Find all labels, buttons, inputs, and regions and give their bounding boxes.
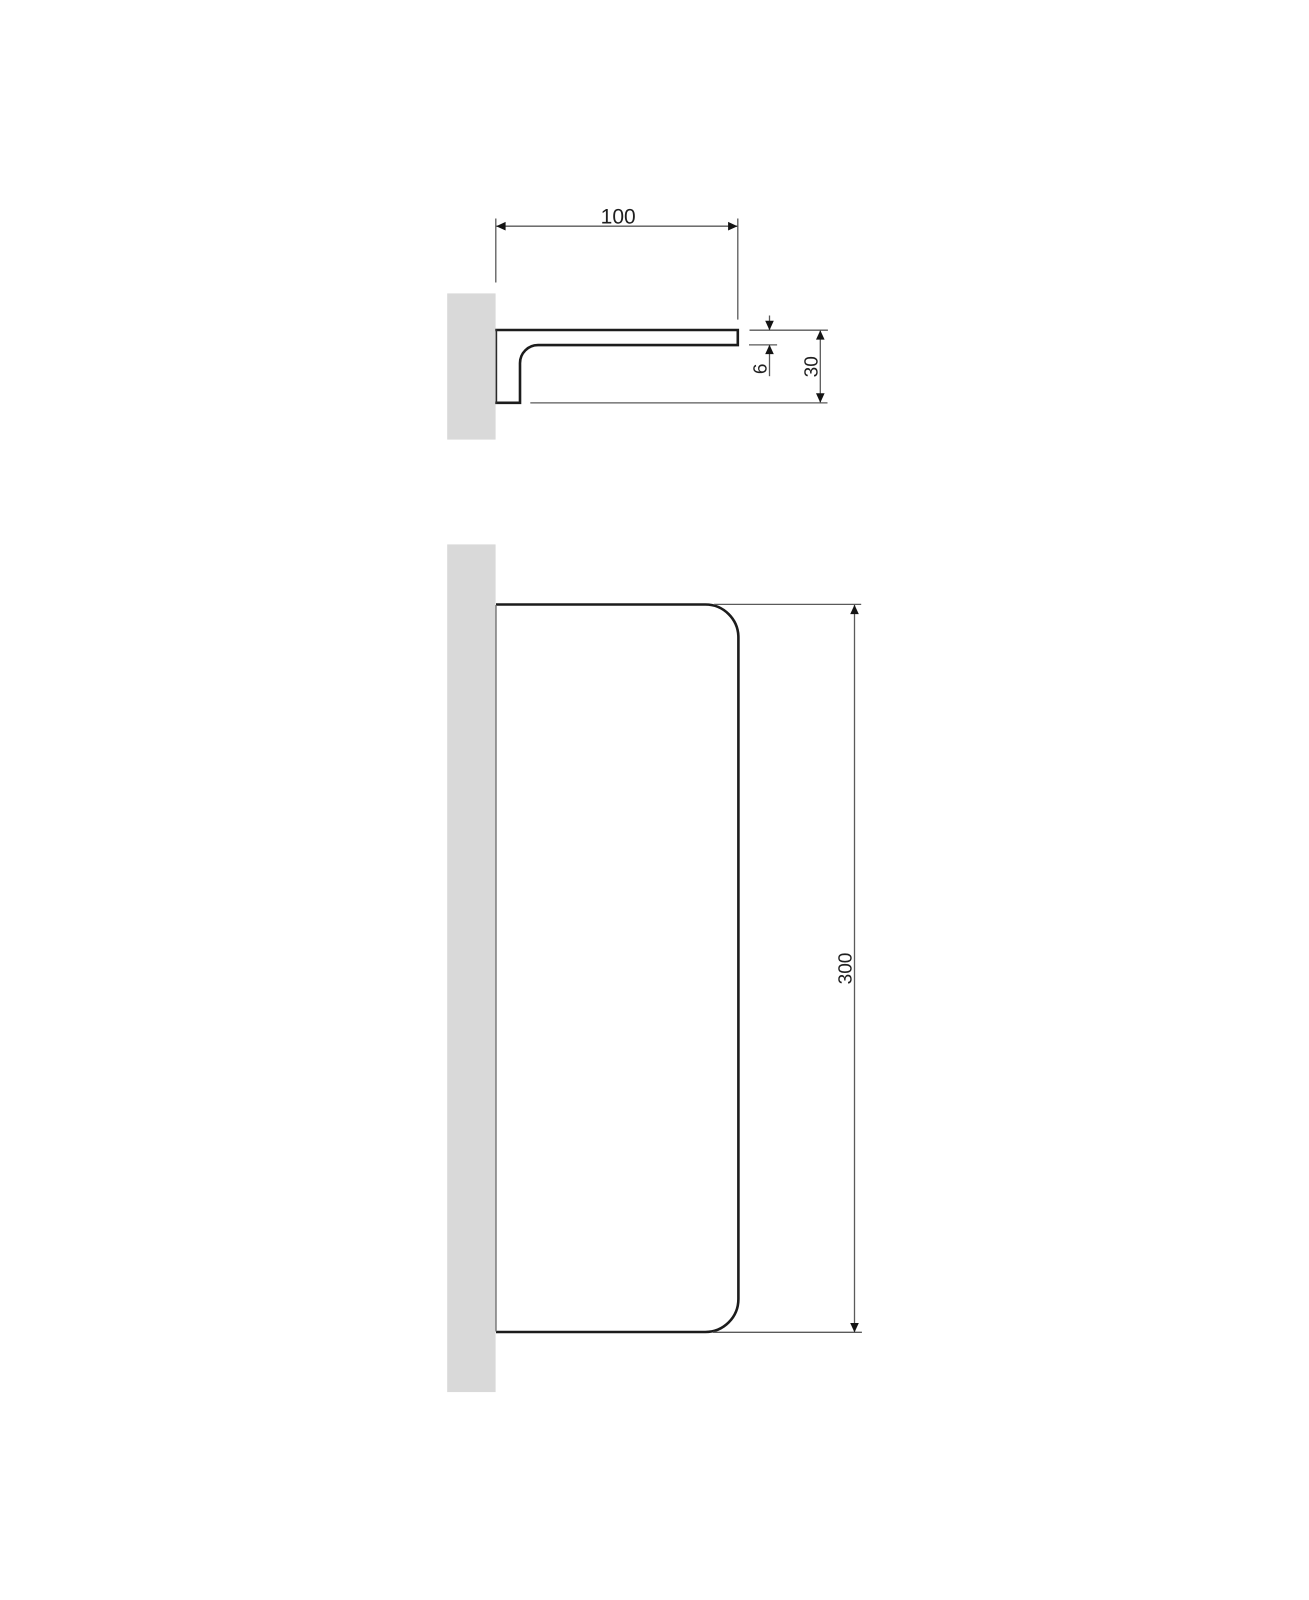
svg-text:100: 100 [601,205,636,228]
svg-text:300: 300 [835,953,856,985]
svg-text:30: 30 [802,356,823,377]
svg-text:6: 6 [750,364,771,375]
